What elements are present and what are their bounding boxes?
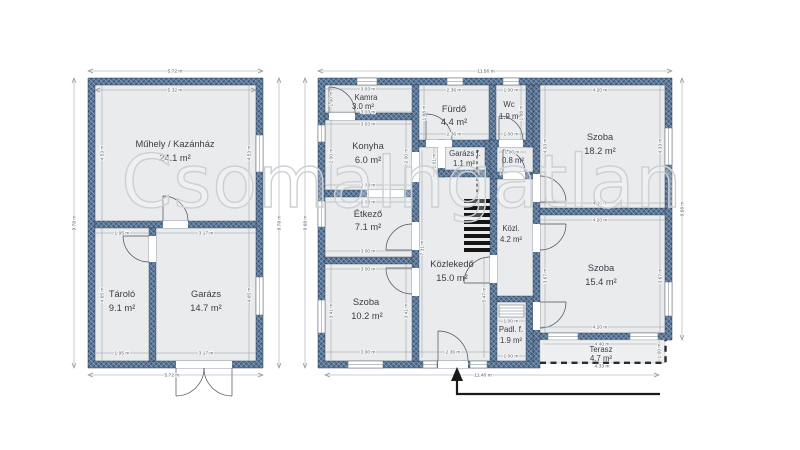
dim-label: 3.17 m	[199, 230, 214, 236]
room-label-garazs: Garázs	[191, 289, 221, 299]
dim-label: 3.03 m	[361, 109, 376, 115]
dim-label: 5.72 m	[168, 68, 183, 74]
dim-label: 4.65 m	[246, 288, 252, 303]
window	[357, 78, 377, 85]
window	[348, 361, 383, 368]
room-area-kozlekedo: 15.0 m²	[436, 273, 468, 283]
door-opening	[533, 224, 540, 252]
left-building: Műhely / Kazánház 24.1 m² Tároló 9.1 m² …	[88, 78, 263, 396]
dim-label: 1.00 m	[328, 92, 334, 107]
dim-label: 1.00 m	[504, 318, 519, 324]
door-opening	[149, 236, 156, 262]
dim-label: 5.47 m	[481, 288, 487, 303]
dim-label: 1.00 m	[504, 87, 519, 93]
window	[470, 361, 487, 368]
dim-label: 5.32 m	[168, 87, 183, 93]
room-label-tarolo: Tároló	[109, 289, 135, 299]
dim-label: 1.00 m	[504, 353, 519, 359]
watermark-text: CsomaIngatlan	[121, 140, 682, 225]
dim-label: 4.65 m	[99, 288, 105, 303]
window	[630, 333, 658, 340]
door-opening	[412, 222, 419, 250]
room-area-szoba-kozep: 15.4 m²	[585, 277, 617, 287]
window	[503, 78, 519, 85]
dim-label: 1.00 m	[656, 344, 662, 359]
window	[423, 361, 437, 368]
room-label-furdo: Fürdő	[442, 104, 466, 114]
interior-wall	[526, 85, 533, 147]
entrance-door-opening	[438, 361, 468, 368]
dim-label: 4.20 m	[593, 324, 608, 330]
dim-label: 3.00 m	[361, 349, 376, 355]
dim-label: 11.46 m	[474, 372, 491, 378]
dim-label: 11.56 m	[477, 68, 494, 74]
dim-label: 3.41 m	[403, 304, 409, 319]
window	[447, 78, 463, 85]
dim-label: 3.03 m	[361, 86, 376, 92]
dim-label: 3.03 m	[361, 121, 376, 127]
dim-label: 3.17 m	[199, 350, 214, 356]
attic-ladder	[499, 305, 524, 317]
dim-label: 2.36 m	[447, 87, 462, 93]
dim-label: 4.40 m	[595, 341, 610, 347]
dim-label: 5.72 m	[165, 372, 180, 378]
dim-label: 3.41 m	[328, 304, 334, 319]
door-opening	[490, 255, 497, 283]
room-label-wc: Wc	[503, 100, 514, 109]
dim-label: 4.20 m	[593, 87, 608, 93]
dim-label: 3.67 m	[542, 269, 548, 284]
dim-label: 1.00 m	[504, 131, 519, 137]
room-label-kozl: Közl.	[502, 224, 519, 233]
interior-wall	[526, 296, 533, 361]
door-opening	[533, 302, 540, 330]
floor-plan-page: Műhely / Kazánház 24.1 m² Tároló 9.1 m² …	[0, 0, 800, 450]
door-opening	[329, 113, 355, 120]
window	[256, 277, 263, 315]
dim-label: 1.88 m	[421, 106, 427, 121]
dim-label: 7.31 m	[419, 241, 425, 256]
window	[665, 282, 672, 316]
room-area-terasz: 4.7 m²	[590, 354, 612, 363]
room-area-garazs: 14.7 m²	[190, 303, 222, 313]
room-area-kozl: 4.2 m²	[500, 235, 522, 244]
floor-plan-canvas: Műhely / Kazánház 24.1 m² Tároló 9.1 m² …	[0, 0, 800, 450]
dim-label: 3.00 m	[361, 248, 376, 254]
dim-label: 9.78 m	[71, 216, 77, 231]
garage-door-opening	[176, 361, 232, 368]
room-label-szoba-kis: Szoba	[353, 297, 380, 307]
interior-wall	[497, 296, 526, 302]
room-area-wc: 1.9 m²	[499, 112, 521, 121]
room-label-szoba-kozep: Szoba	[588, 263, 615, 273]
garage-door-swing	[204, 368, 232, 396]
room-label-padlas-feljaro: Padl. f.	[499, 325, 523, 334]
dim-label: 4.53 m	[99, 146, 105, 161]
room-area-padlas-feljaro: 1.9 m²	[500, 336, 522, 345]
room-area-szoba-kis: 10.2 m²	[351, 311, 383, 321]
room-area-tarolo: 9.1 m²	[109, 303, 135, 313]
dim-label: 3.67 m	[657, 269, 663, 284]
dim-label: 4.33 m	[595, 363, 610, 369]
room-label-kozlekedo: Közlekedő	[430, 259, 473, 269]
dim-label: 2.36 m	[446, 349, 461, 355]
terrace-door	[548, 333, 578, 340]
dim-label: 2.36 m	[447, 131, 462, 137]
entrance-arrow	[451, 367, 660, 394]
dim-label: 3.00 m	[361, 266, 376, 272]
room-area-furdo: 4.4 m²	[441, 117, 467, 127]
garage-door-swing	[176, 368, 204, 396]
interior-wall	[325, 257, 412, 264]
dim-label: 1.95 m	[115, 350, 130, 356]
dim-label: 1.88 m	[518, 106, 524, 121]
dim-label: 1.95 m	[115, 230, 130, 236]
room-label-kamra: Kamra	[355, 93, 379, 102]
interior-wall	[489, 85, 496, 140]
window	[318, 300, 325, 333]
door-opening	[412, 268, 419, 296]
